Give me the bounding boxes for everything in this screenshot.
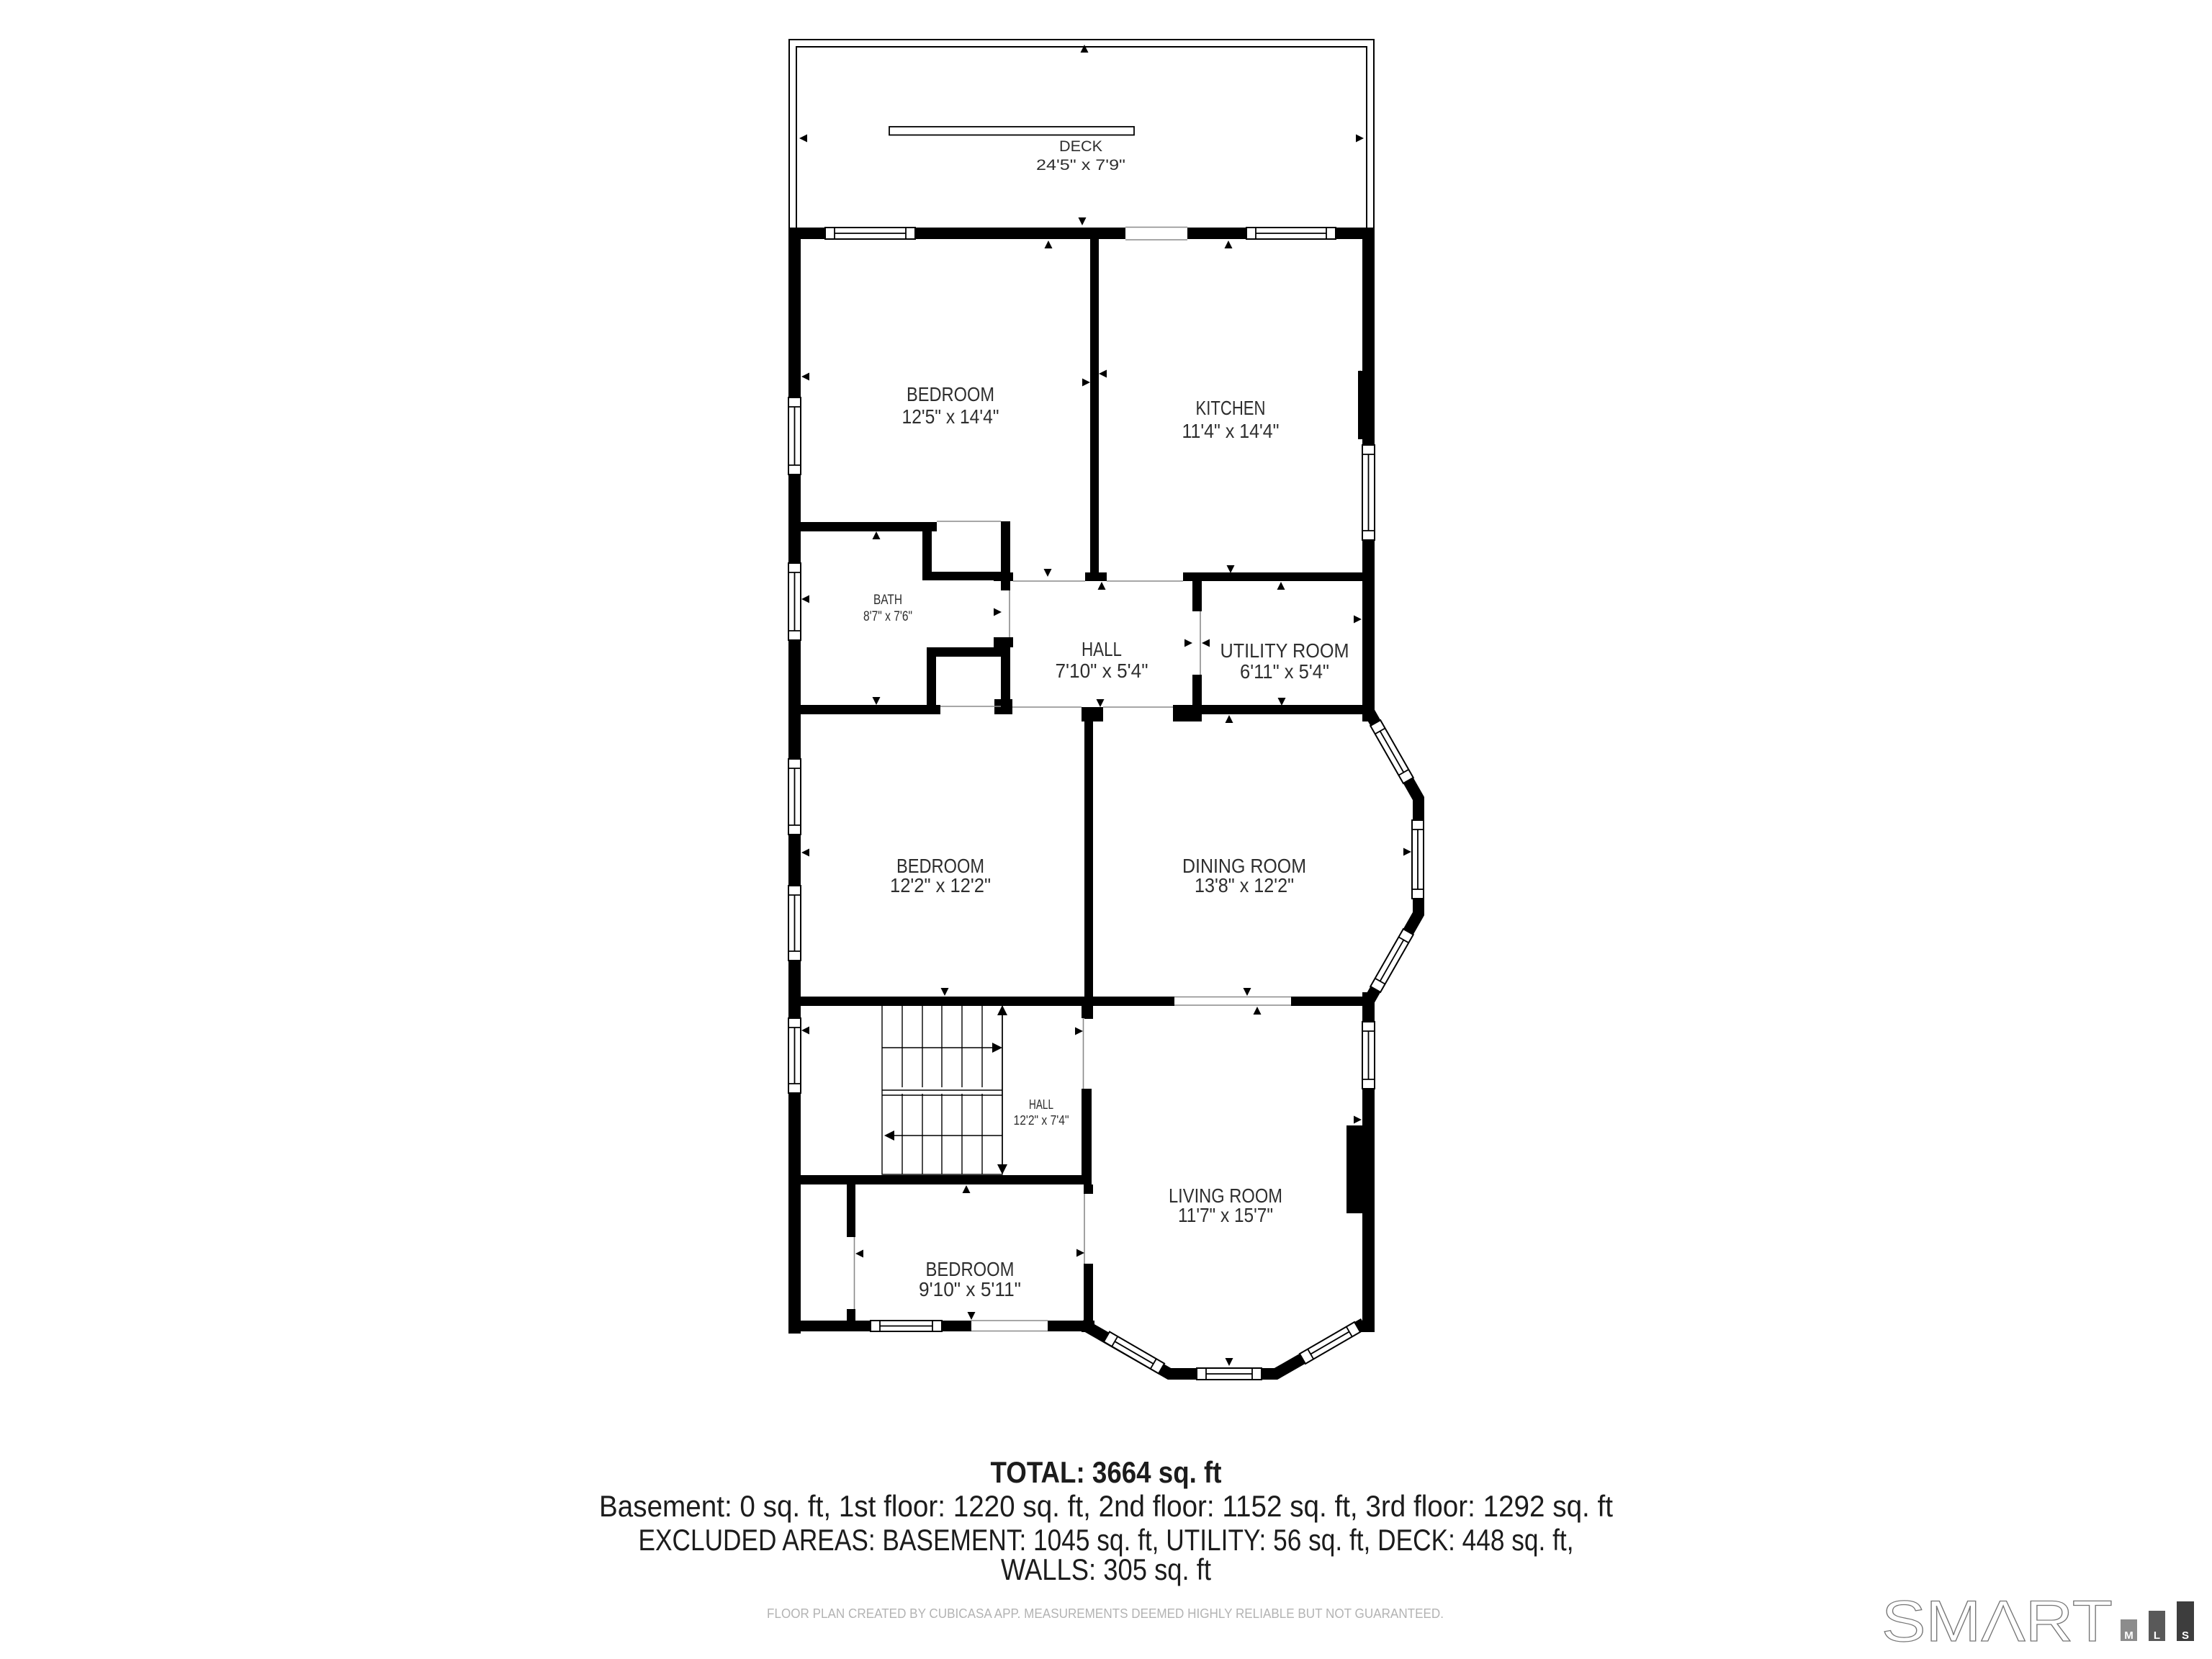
svg-text:12'2" x 12'2": 12'2" x 12'2" [890,874,991,896]
svg-text:SMΛRT: SMΛRT [1881,1589,2113,1654]
svg-text:Basement: 0 sq. ft, 1st floor:: Basement: 0 sq. ft, 1st floor: 1220 sq. … [599,1489,1613,1523]
svg-text:BEDROOM: BEDROOM [926,1258,1015,1280]
svg-text:12'5" x 14'4": 12'5" x 14'4" [902,405,999,428]
svg-text:6'11" x 5'4": 6'11" x 5'4" [1240,660,1329,683]
svg-text:L: L [2154,1629,2160,1642]
svg-text:11'7" x 15'7": 11'7" x 15'7" [1178,1204,1273,1226]
svg-text:WALLS: 305 sq. ft: WALLS: 305 sq. ft [1001,1552,1211,1586]
svg-text:FLOOR PLAN CREATED BY CUBICASA: FLOOR PLAN CREATED BY CUBICASA APP. MEAS… [767,1606,1444,1621]
svg-text:HALL: HALL [1029,1097,1053,1112]
svg-text:8'7" x 7'6": 8'7" x 7'6" [863,609,912,624]
svg-text:DECK: DECK [1059,138,1102,155]
svg-text:KITCHEN: KITCHEN [1196,397,1266,419]
svg-text:12'2" x 7'4": 12'2" x 7'4" [1014,1112,1069,1128]
svg-text:9'10" x 5'11": 9'10" x 5'11" [919,1278,1021,1300]
svg-text:UTILITY ROOM: UTILITY ROOM [1220,639,1349,662]
svg-text:BEDROOM: BEDROOM [907,383,994,405]
svg-text:M: M [2124,1629,2134,1642]
svg-text:HALL: HALL [1082,638,1122,660]
svg-text:13'8" x 12'2": 13'8" x 12'2" [1195,874,1294,896]
svg-text:24'5" x 7'9": 24'5" x 7'9" [1036,157,1125,174]
svg-text:TOTAL: 3664 sq. ft: TOTAL: 3664 sq. ft [991,1455,1222,1489]
svg-text:S: S [2182,1629,2189,1642]
svg-text:11'4" x 14'4": 11'4" x 14'4" [1182,420,1280,442]
svg-text:BATH: BATH [873,593,902,608]
svg-text:7'10" x 5'4": 7'10" x 5'4" [1056,660,1148,682]
svg-text:EXCLUDED AREAS: BASEMENT: 1045: EXCLUDED AREAS: BASEMENT: 1045 sq. ft, U… [639,1523,1574,1557]
